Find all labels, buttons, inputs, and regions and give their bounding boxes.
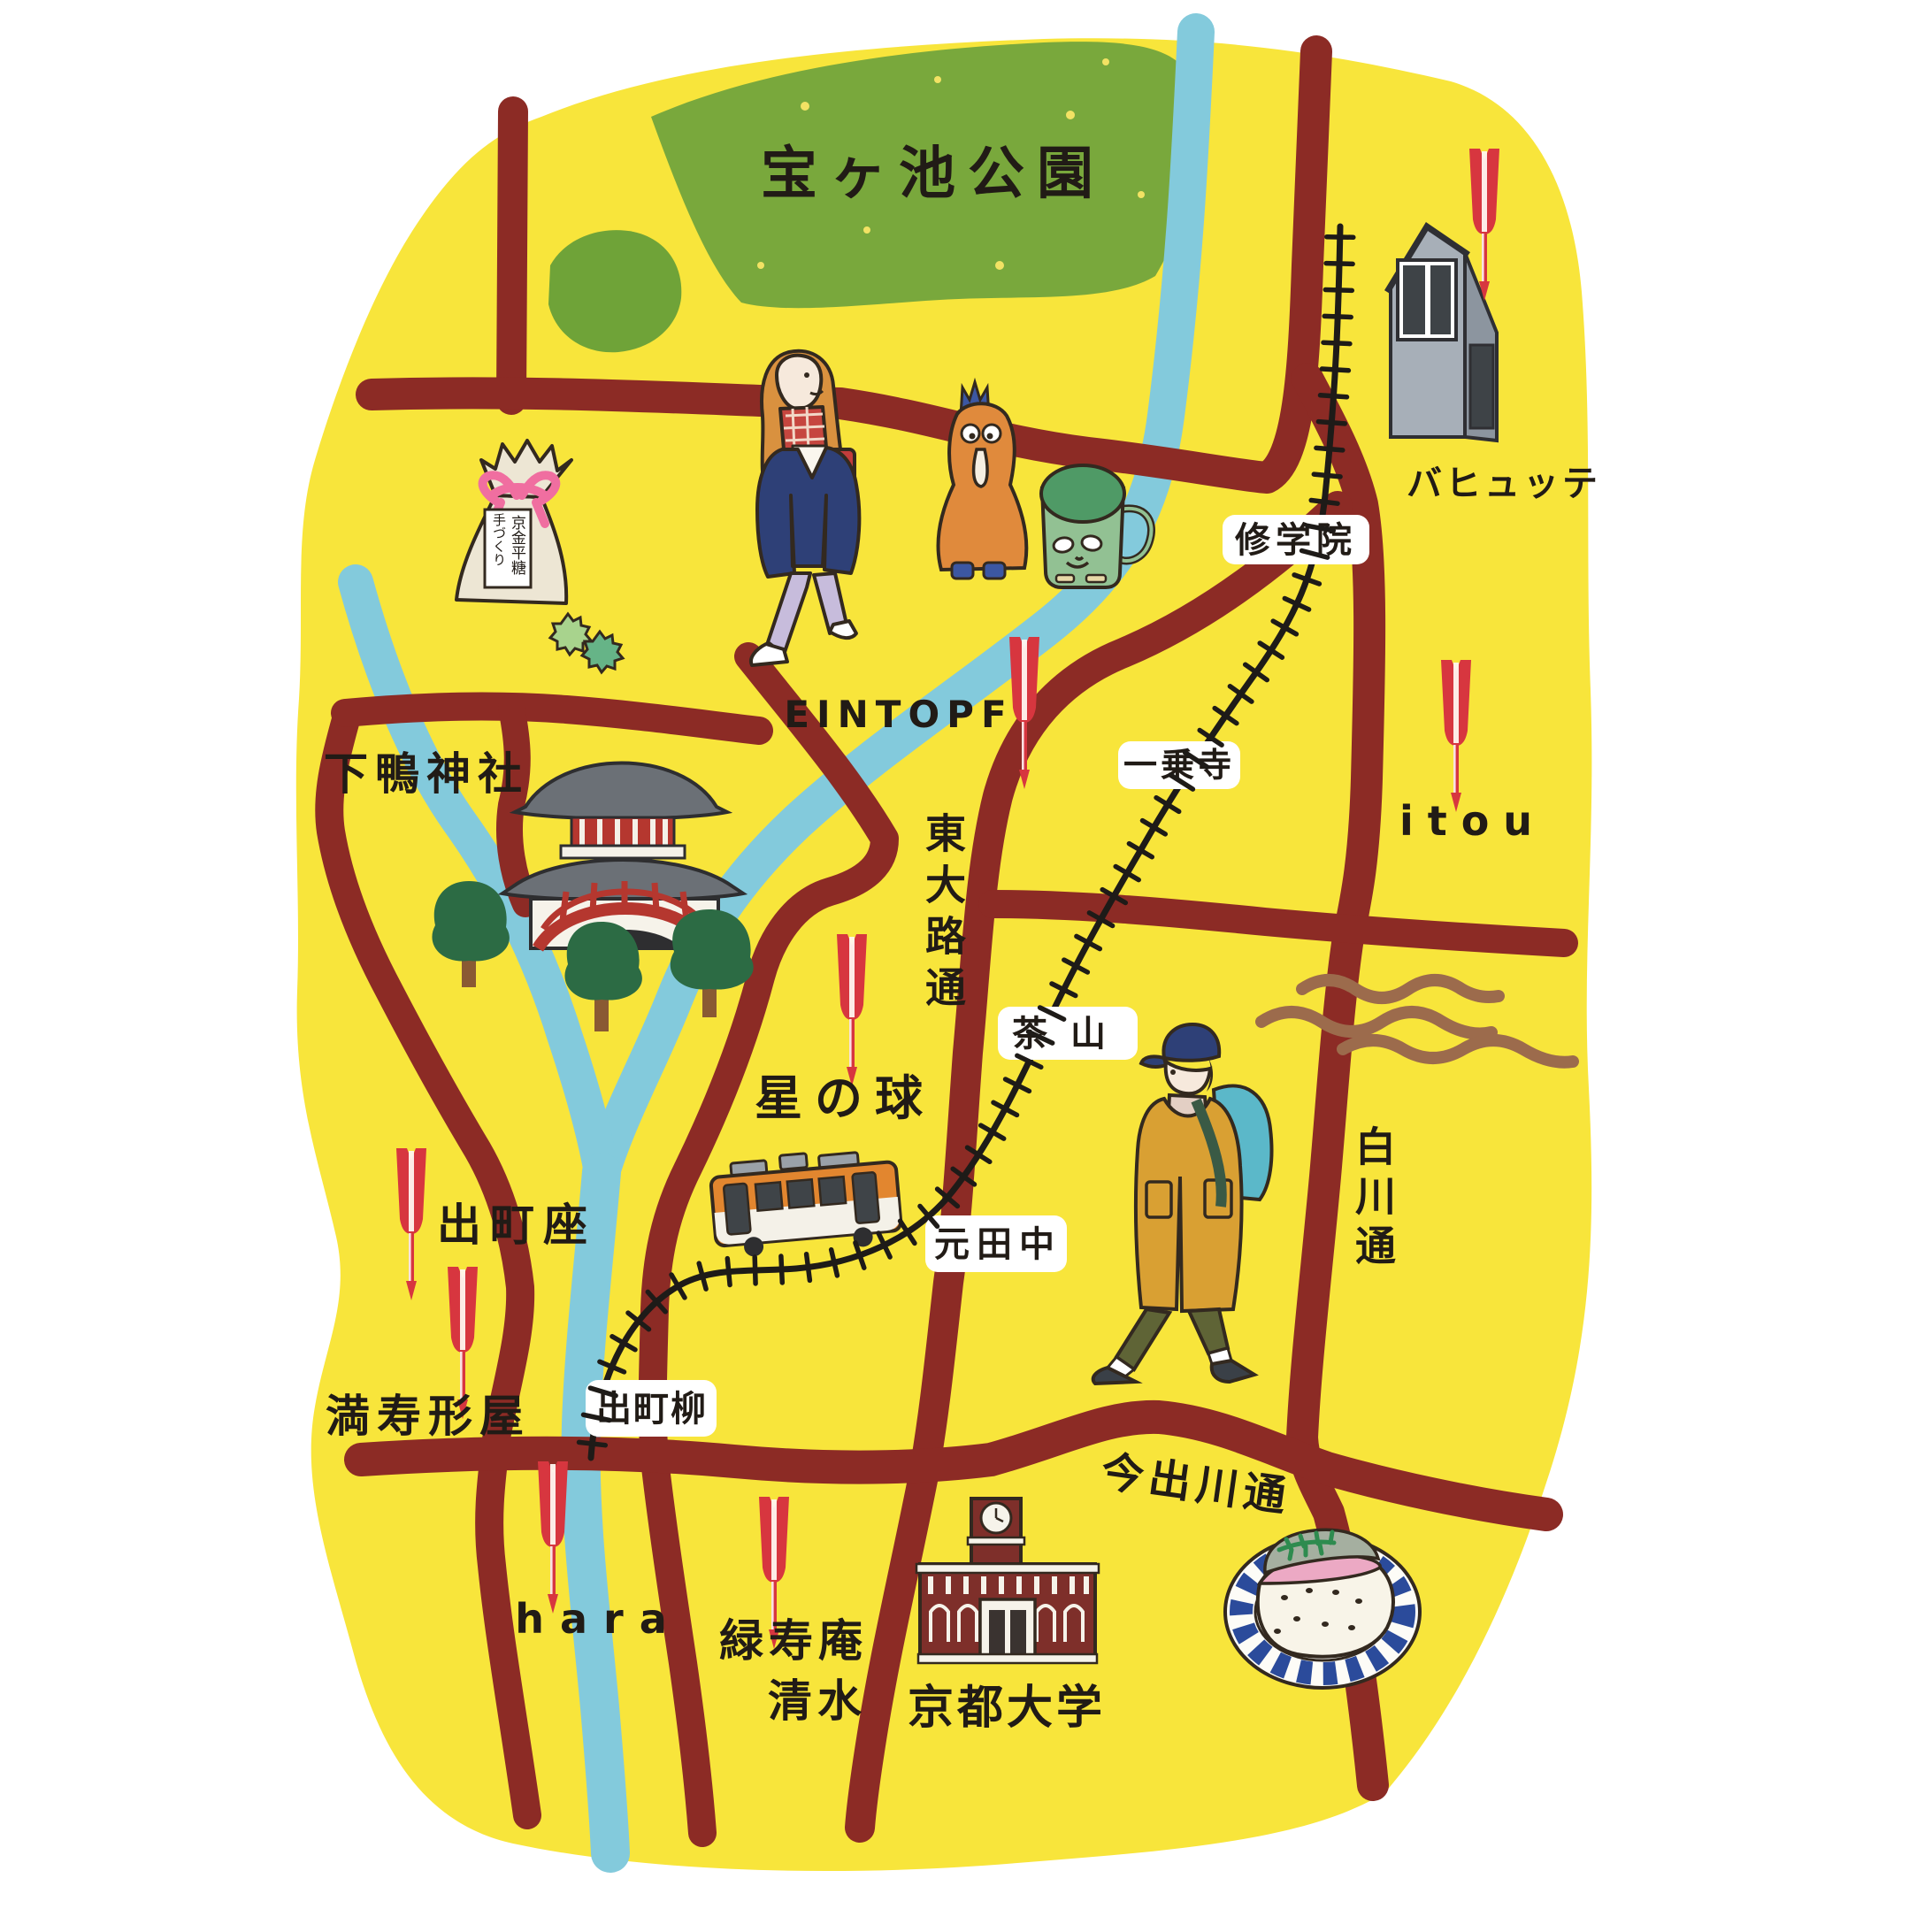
bird-wattle xyxy=(974,449,987,487)
railway-tie xyxy=(755,1257,755,1284)
label-eintopf: EINTOPF xyxy=(784,693,1013,736)
entrance-door xyxy=(1010,1610,1026,1660)
label-itou: itou xyxy=(1399,797,1546,845)
railway-tie xyxy=(1326,264,1353,264)
label-ryokujuan-line2: 清水 xyxy=(768,1675,867,1727)
railway-tie xyxy=(1324,316,1351,317)
illustrated-kyoto-map: 手づくり 京金平糖 xyxy=(0,0,1932,1932)
railway-tie xyxy=(1318,422,1345,424)
person-cap xyxy=(1163,1024,1219,1061)
mug-drink-top xyxy=(1041,465,1124,522)
railway-tie xyxy=(727,1259,730,1285)
train-door xyxy=(724,1184,751,1235)
shrine-red-band xyxy=(571,817,674,847)
park-small-grove xyxy=(548,230,681,352)
woman-face xyxy=(777,356,821,409)
railway-tie xyxy=(1323,342,1350,343)
bag-label-text: 手づくり xyxy=(491,513,507,566)
railway-tie xyxy=(1327,237,1353,238)
label-shirakawa-dori: 白川通 xyxy=(1349,1125,1397,1274)
bird-foot xyxy=(984,563,1005,579)
label-kyoto-university: 京都大学 xyxy=(908,1682,1106,1735)
university-cornice xyxy=(916,1564,1099,1573)
bird-pupil xyxy=(970,433,976,440)
train-window xyxy=(819,1177,847,1205)
label-demachiza: 出町座 xyxy=(437,1200,596,1251)
shrine-beam xyxy=(561,846,685,858)
hut-window-pane xyxy=(1403,265,1425,334)
train-window xyxy=(787,1179,815,1207)
railway-tie xyxy=(579,1442,606,1445)
road-north-vertical xyxy=(511,111,513,400)
label-hara: hara xyxy=(515,1595,683,1643)
person-eye xyxy=(1170,1069,1176,1075)
tower-band xyxy=(968,1537,1024,1545)
railway-tie xyxy=(1311,501,1338,504)
train-roof-gear xyxy=(779,1154,807,1170)
label-bahyutte: バヒュッテ xyxy=(1407,464,1601,504)
railway-tie xyxy=(1322,369,1348,371)
bird-pupil xyxy=(987,433,993,440)
bird-eye xyxy=(962,425,979,442)
woman-eye xyxy=(804,372,809,378)
label-higashioji-dori: 東大路通 xyxy=(919,812,967,1017)
hut-slat-window xyxy=(1470,345,1493,428)
university-base xyxy=(918,1654,1097,1663)
university-entrance xyxy=(980,1599,1035,1660)
hut-window-pane xyxy=(1430,265,1451,334)
label-ryokujuan-line1: 緑寿庵 xyxy=(719,1615,868,1667)
entrance-door xyxy=(989,1610,1005,1660)
railway-tie xyxy=(1314,474,1340,477)
station-name-mototanaka: 元田中 xyxy=(934,1224,1062,1265)
mug-tooth xyxy=(1086,575,1106,582)
railway-tie xyxy=(1321,395,1347,397)
label-takaragaike-park: 宝ヶ池公園 xyxy=(761,142,1106,207)
map-canvas: 手づくり 京金平糖 xyxy=(0,0,1932,1932)
road-shrine-stub xyxy=(510,708,525,904)
person-cap-brim xyxy=(1141,1056,1166,1067)
train-window xyxy=(755,1182,783,1210)
railway-tie xyxy=(781,1256,782,1283)
bird-eye xyxy=(983,425,1000,442)
bird-foot xyxy=(952,563,973,579)
label-hoshi-no-tama: 星の球 xyxy=(755,1070,935,1126)
woman-jacket xyxy=(757,448,859,577)
railway-tie xyxy=(1325,290,1352,291)
label-masugataya: 満寿形屋 xyxy=(326,1391,531,1442)
bag-label-text: 京金平糖 xyxy=(508,515,526,575)
train-door xyxy=(852,1172,879,1223)
railway-tie xyxy=(807,1254,810,1281)
railway-tie xyxy=(1316,448,1343,450)
woman-shoe xyxy=(830,621,856,638)
label-shimogamo-shrine: 下鴨神社 xyxy=(324,748,529,800)
station-name-shugakuin: 修学院 xyxy=(1235,520,1357,561)
mug-tooth xyxy=(1056,575,1074,582)
